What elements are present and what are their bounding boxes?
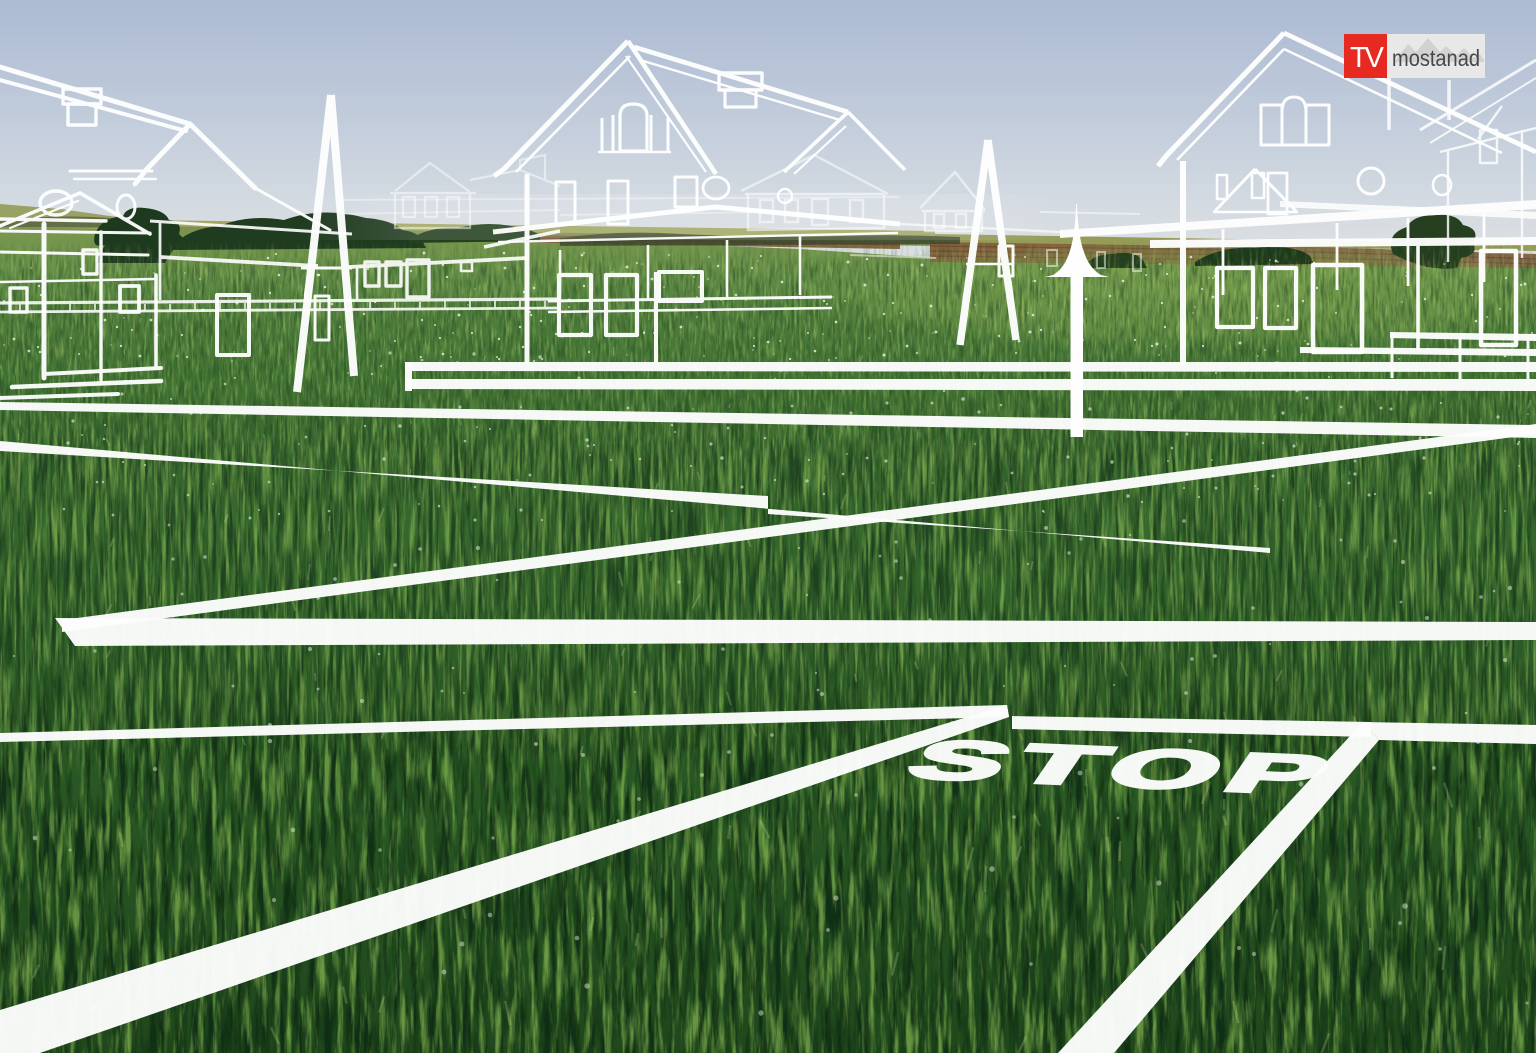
svg-text:TV: TV: [1350, 42, 1385, 74]
svg-text:mostanad: mostanad: [1392, 45, 1480, 71]
